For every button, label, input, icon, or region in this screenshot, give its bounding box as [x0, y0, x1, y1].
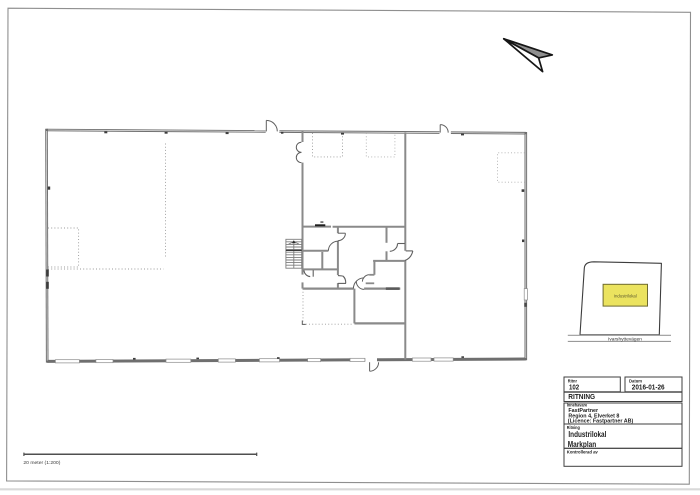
svg-text:Innehavare: Innehavare	[567, 402, 588, 407]
svg-text:RITNING: RITNING	[568, 392, 595, 401]
svg-text:Markplan: Markplan	[568, 440, 596, 449]
svg-text:2016-01-26: 2016-01-26	[632, 385, 665, 392]
svg-text:Datum: Datum	[629, 379, 642, 384]
svg-text:Industrilokal: Industrilokal	[568, 430, 606, 439]
svg-text:Ritnr: Ritnr	[568, 379, 577, 384]
svg-text:(Licence: Fastpartner AB): (Licence: Fastpartner AB)	[568, 419, 634, 425]
svg-text:Ivarshyttevägen: Ivarshyttevägen	[608, 336, 642, 342]
svg-text:Kontrollerad av: Kontrollerad av	[567, 450, 599, 455]
svg-text:20 meter (1:200): 20 meter (1:200)	[23, 460, 60, 466]
svg-text:Industrilokal: Industrilokal	[614, 293, 637, 298]
svg-text:102: 102	[569, 384, 579, 391]
